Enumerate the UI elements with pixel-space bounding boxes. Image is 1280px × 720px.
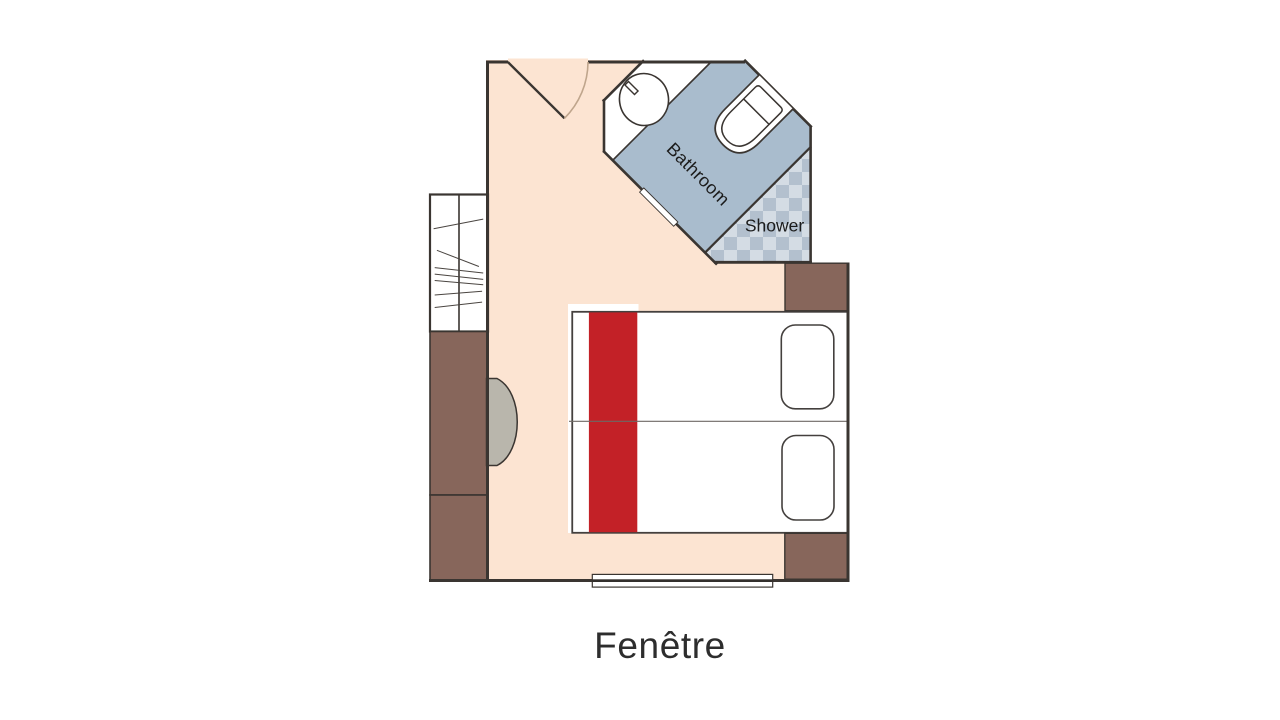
svg-text:Shower: Shower [745,216,805,236]
svg-text:Fenêtre: Fenêtre [594,625,726,666]
